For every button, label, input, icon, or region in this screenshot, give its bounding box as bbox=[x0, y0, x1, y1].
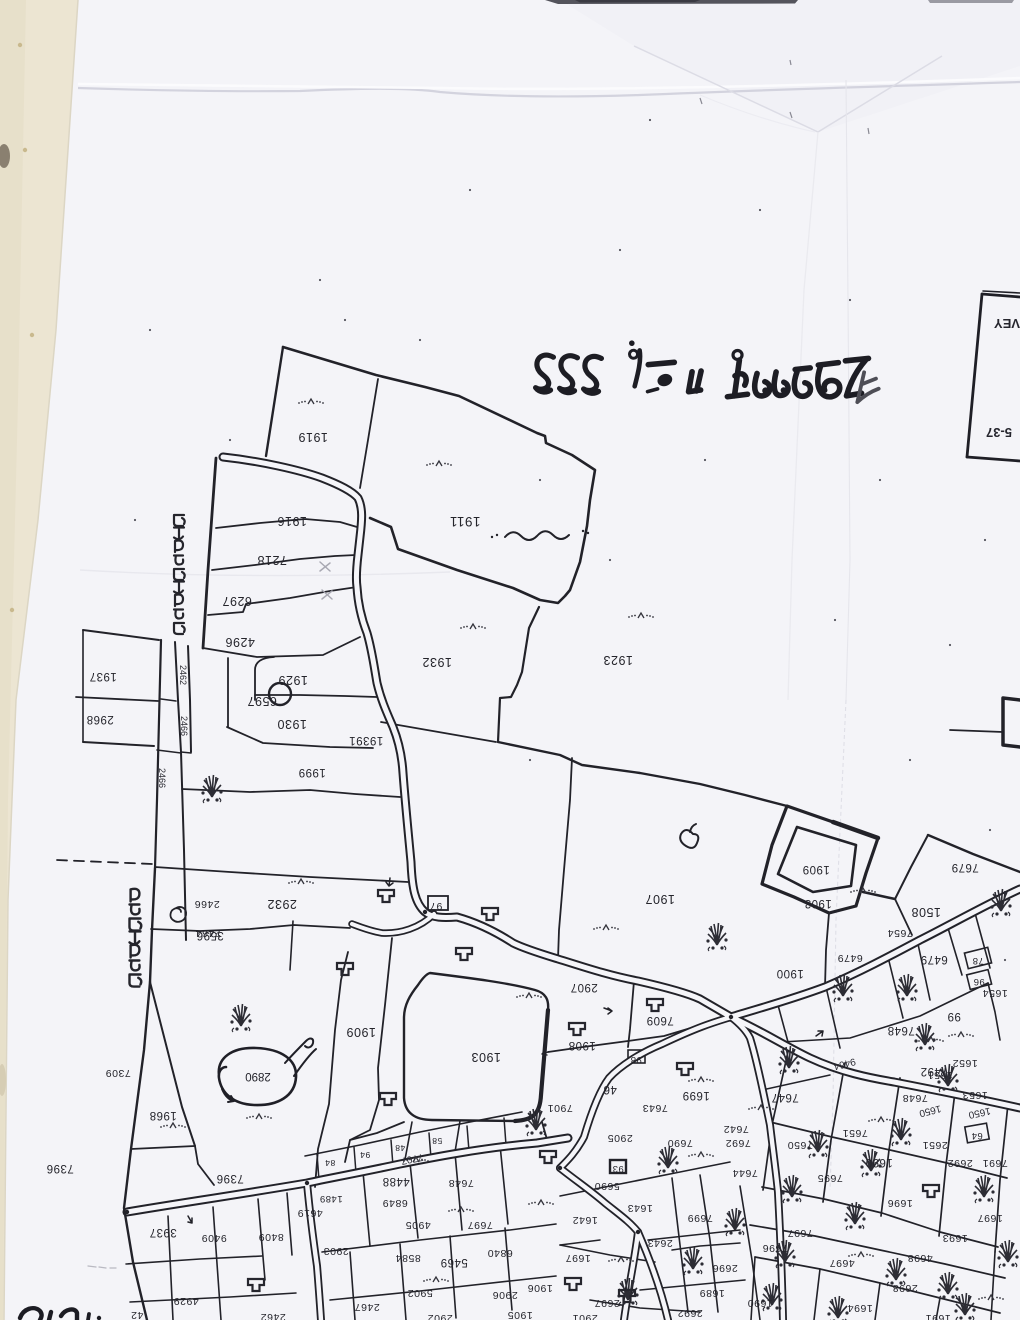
svg-text:2466: 2466 bbox=[179, 716, 189, 736]
svg-text:4488: 4488 bbox=[382, 1175, 410, 1187]
svg-text:4698: 4698 bbox=[907, 1252, 932, 1264]
svg-text:1908: 1908 bbox=[568, 1039, 596, 1051]
svg-text:2467: 2467 bbox=[354, 1301, 379, 1313]
svg-text:84: 84 bbox=[325, 1158, 335, 1168]
svg-text:4929: 4929 bbox=[173, 1295, 198, 1307]
svg-text:5469: 5469 bbox=[440, 1256, 468, 1268]
svg-text:7218: 7218 bbox=[257, 553, 287, 567]
svg-text:1932: 1932 bbox=[422, 655, 452, 669]
svg-text:VEY: VEY bbox=[994, 316, 1020, 331]
svg-text:2905: 2905 bbox=[607, 1132, 632, 1144]
svg-text:7691: 7691 bbox=[982, 1157, 1007, 1169]
svg-text:1911: 1911 bbox=[449, 514, 480, 529]
svg-text:7695: 7695 bbox=[817, 1172, 842, 1184]
svg-text:1999: 1999 bbox=[298, 766, 326, 778]
svg-text:2906: 2906 bbox=[492, 1289, 517, 1301]
svg-text:7651: 7651 bbox=[842, 1127, 867, 1139]
svg-text:48: 48 bbox=[395, 1143, 405, 1153]
svg-text:1508: 1508 bbox=[911, 905, 941, 919]
svg-text:7609: 7609 bbox=[646, 1014, 674, 1026]
svg-text:7650: 7650 bbox=[787, 1139, 812, 1151]
svg-text:2692: 2692 bbox=[947, 1157, 972, 1169]
svg-text:7696: 7696 bbox=[762, 1242, 787, 1254]
svg-text:1903: 1903 bbox=[804, 897, 832, 909]
svg-text:2643: 2643 bbox=[647, 1237, 672, 1249]
svg-text:7690: 7690 bbox=[667, 1137, 692, 1149]
svg-text:78: 78 bbox=[972, 955, 984, 966]
svg-text:5690: 5690 bbox=[594, 1180, 619, 1192]
svg-text:5-37: 5-37 bbox=[986, 425, 1012, 440]
svg-text:98: 98 bbox=[630, 1054, 642, 1065]
svg-text:1690: 1690 bbox=[747, 1297, 772, 1309]
svg-text:99: 99 bbox=[947, 1010, 961, 1022]
svg-text:1691: 1691 bbox=[925, 1312, 950, 1320]
svg-text:1909: 1909 bbox=[346, 1025, 376, 1039]
svg-text:1909: 1909 bbox=[802, 863, 830, 875]
svg-text:1916: 1916 bbox=[277, 514, 307, 528]
svg-text:42: 42 bbox=[131, 1309, 144, 1320]
svg-text:1906: 1906 bbox=[527, 1282, 552, 1294]
svg-text:19391: 19391 bbox=[349, 734, 383, 746]
svg-text:1968: 1968 bbox=[149, 1109, 177, 1121]
svg-text:9409: 9409 bbox=[201, 1232, 226, 1244]
svg-text:2968: 2968 bbox=[86, 713, 114, 725]
svg-text:6479: 6479 bbox=[920, 953, 948, 965]
svg-text:2932: 2932 bbox=[267, 897, 297, 911]
svg-text:7396: 7396 bbox=[46, 1162, 74, 1174]
svg-text:7648: 7648 bbox=[902, 1092, 927, 1104]
svg-text:46: 46 bbox=[603, 1083, 617, 1095]
svg-text:1697: 1697 bbox=[565, 1252, 590, 1264]
svg-text:1900: 1900 bbox=[776, 967, 804, 979]
svg-text:1929: 1929 bbox=[278, 673, 308, 687]
svg-text:7654: 7654 bbox=[887, 927, 912, 939]
svg-text:64: 64 bbox=[971, 1130, 983, 1141]
svg-text:2696: 2696 bbox=[712, 1262, 737, 1274]
svg-text:6849: 6849 bbox=[382, 1197, 407, 1209]
svg-text:7647: 7647 bbox=[771, 1091, 799, 1103]
svg-text:1923: 1923 bbox=[603, 653, 633, 667]
svg-text:4619: 4619 bbox=[297, 1207, 322, 1219]
svg-text:2466: 2466 bbox=[194, 898, 219, 910]
svg-text:1937: 1937 bbox=[89, 670, 117, 682]
svg-text:1905: 1905 bbox=[507, 1309, 532, 1320]
svg-text:6840: 6840 bbox=[487, 1247, 512, 1259]
svg-text:2698: 2698 bbox=[892, 1282, 917, 1294]
svg-text:7699: 7699 bbox=[687, 1212, 712, 1224]
svg-text:2903: 2903 bbox=[323, 1245, 348, 1257]
svg-text:2466: 2466 bbox=[157, 768, 167, 788]
svg-text:1643: 1643 bbox=[627, 1202, 652, 1214]
svg-text:6597: 6597 bbox=[247, 694, 277, 708]
svg-text:1654: 1654 bbox=[982, 987, 1007, 999]
svg-text:2907: 2907 bbox=[570, 981, 598, 993]
svg-text:93: 93 bbox=[612, 1163, 624, 1174]
svg-text:1696: 1696 bbox=[887, 1197, 912, 1209]
svg-text:2692: 2692 bbox=[677, 1307, 702, 1319]
svg-text:4296: 4296 bbox=[225, 635, 255, 649]
svg-text:94: 94 bbox=[360, 1150, 370, 1160]
svg-text:1697: 1697 bbox=[977, 1212, 1002, 1224]
svg-text:6297: 6297 bbox=[222, 594, 252, 608]
svg-text:7643: 7643 bbox=[642, 1102, 667, 1114]
svg-text:1642: 1642 bbox=[572, 1214, 597, 1226]
svg-text:1699: 1699 bbox=[682, 1089, 710, 1101]
svg-text:8584: 8584 bbox=[395, 1252, 420, 1264]
svg-text:1919: 1919 bbox=[298, 430, 328, 444]
svg-text:7644: 7644 bbox=[732, 1167, 757, 1179]
svg-text:7901: 7901 bbox=[547, 1102, 572, 1114]
svg-text:1907: 1907 bbox=[645, 892, 675, 906]
svg-text:1489: 1489 bbox=[319, 1193, 342, 1204]
svg-text:2901: 2901 bbox=[572, 1312, 597, 1320]
svg-text:1930: 1930 bbox=[277, 717, 307, 731]
svg-text:7648: 7648 bbox=[887, 1024, 915, 1036]
svg-text:6479: 6479 bbox=[837, 952, 862, 964]
svg-text:2651: 2651 bbox=[922, 1139, 947, 1151]
svg-text:1652: 1652 bbox=[952, 1057, 977, 1069]
svg-text:1693: 1693 bbox=[942, 1232, 967, 1244]
svg-text:58: 58 bbox=[432, 1136, 442, 1146]
svg-text:2890: 2890 bbox=[245, 1070, 271, 1082]
svg-text:7679: 7679 bbox=[951, 861, 979, 873]
svg-text:7648: 7648 bbox=[448, 1177, 473, 1189]
svg-text:8409: 8409 bbox=[258, 1231, 283, 1243]
svg-text:4697: 4697 bbox=[829, 1257, 854, 1269]
svg-text:7692: 7692 bbox=[725, 1137, 750, 1149]
svg-text:2462: 2462 bbox=[178, 665, 188, 685]
svg-text:3937: 3937 bbox=[149, 1226, 177, 1238]
svg-text:2464: 2464 bbox=[195, 927, 220, 939]
svg-text:1653: 1653 bbox=[962, 1089, 987, 1101]
svg-text:4905: 4905 bbox=[405, 1219, 430, 1231]
svg-text:1651: 1651 bbox=[927, 1069, 952, 1081]
svg-text:5902: 5902 bbox=[407, 1287, 432, 1299]
svg-text:2462: 2462 bbox=[260, 1311, 285, 1320]
svg-text:1903: 1903 bbox=[471, 1050, 501, 1064]
svg-text:1694: 1694 bbox=[847, 1302, 872, 1314]
svg-text:1690: 1690 bbox=[865, 1156, 893, 1168]
svg-text:96: 96 bbox=[973, 976, 985, 987]
svg-text:7697: 7697 bbox=[467, 1219, 492, 1231]
svg-text:7697: 7697 bbox=[787, 1227, 812, 1239]
svg-text:1689: 1689 bbox=[699, 1287, 724, 1299]
svg-text:97: 97 bbox=[430, 900, 443, 912]
svg-text:2902: 2902 bbox=[427, 1312, 452, 1320]
svg-text:2697: 2697 bbox=[594, 1297, 619, 1309]
svg-text:7396: 7396 bbox=[216, 1172, 244, 1184]
svg-text:7642: 7642 bbox=[723, 1123, 748, 1135]
svg-text:7309: 7309 bbox=[105, 1067, 130, 1079]
